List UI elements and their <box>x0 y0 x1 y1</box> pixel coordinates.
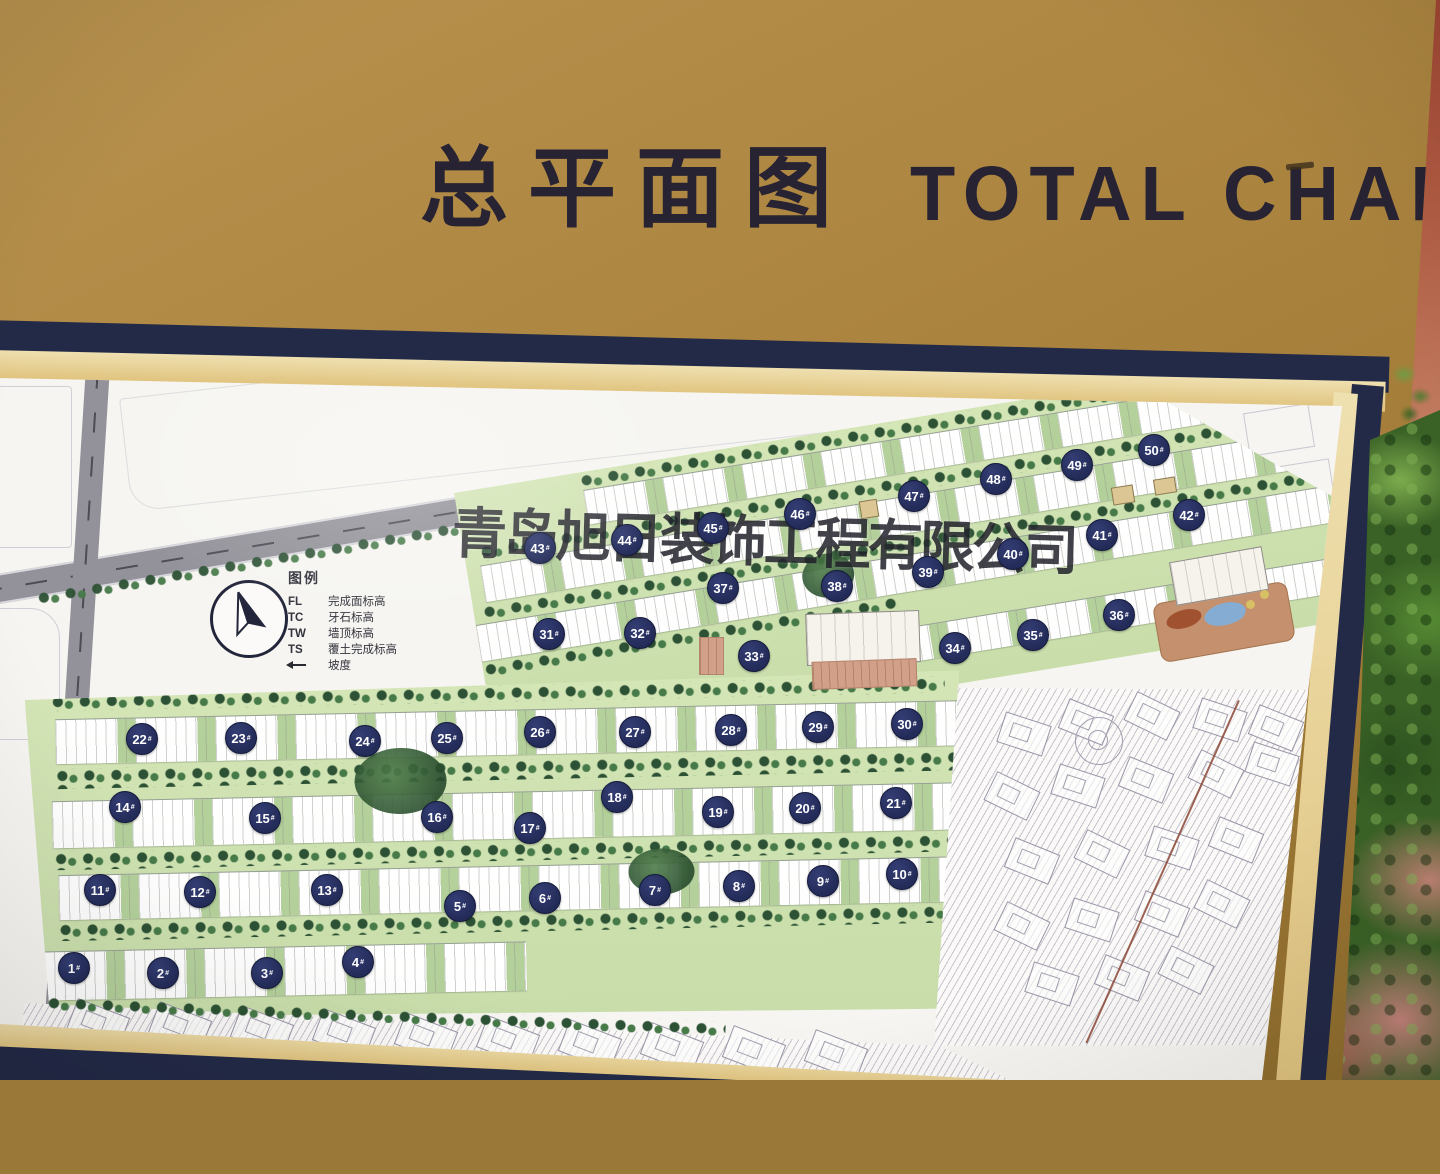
photo-of-site-plan-signboard: { "title": { "zh": "总平面图", "en": "TOTAL … <box>0 0 1440 1080</box>
title-english: TOTAL CHART <box>910 149 1440 237</box>
title-chinese: 总平面图 <box>420 118 852 245</box>
board-title: 总平面图 TOTAL CHART <box>420 118 1360 245</box>
gold-sign-board: 总平面图 TOTAL CHART <box>0 0 1440 1080</box>
